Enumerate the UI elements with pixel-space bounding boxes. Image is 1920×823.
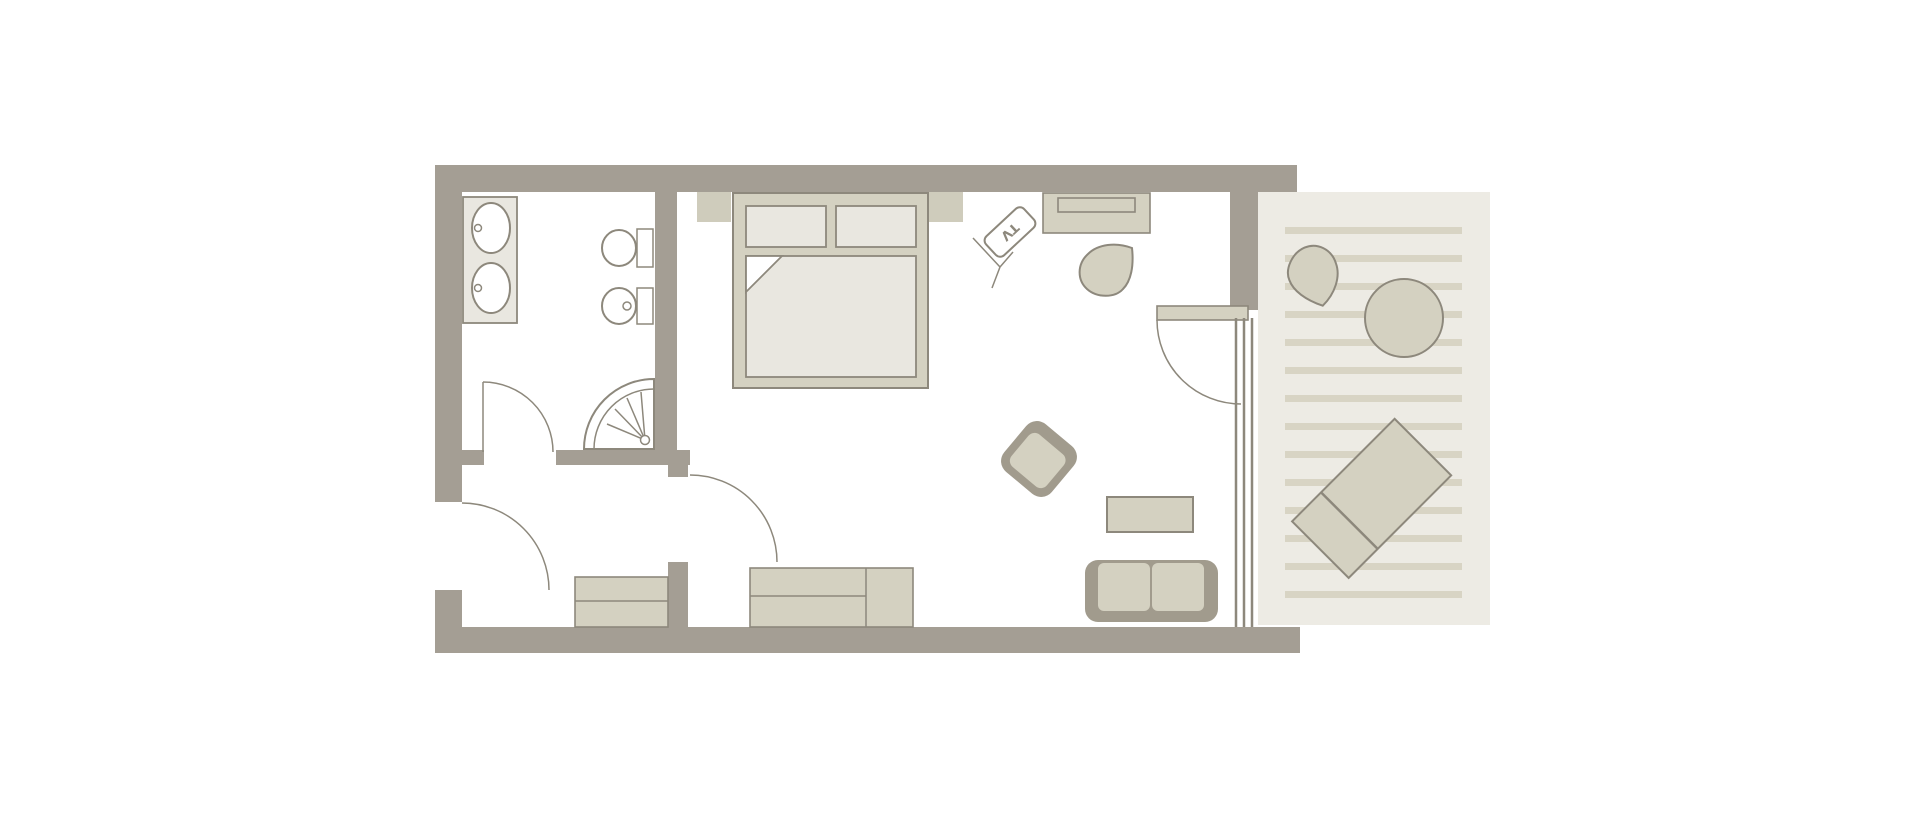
toilet-bowl	[602, 230, 636, 266]
sofa	[1085, 560, 1218, 622]
sink-faucet-icon	[475, 225, 482, 232]
bed-pillow-left	[746, 206, 826, 247]
armchair	[995, 415, 1082, 502]
interior-door-swing	[690, 475, 777, 562]
desk	[1043, 193, 1150, 233]
wall-balcony-stub	[1230, 192, 1258, 310]
balcony-round-table	[1365, 279, 1443, 357]
coffee-table	[1107, 497, 1193, 532]
nightstand-right	[929, 192, 963, 222]
tv-unit: TV	[973, 205, 1038, 288]
shower-drain-icon	[641, 436, 650, 445]
balcony-deck-stripe	[1285, 563, 1462, 570]
balcony-deck-stripe	[1285, 367, 1462, 374]
wall-bathroom-bottom-left	[462, 450, 484, 465]
sideboard	[750, 568, 913, 627]
sink-faucet-icon	[475, 285, 482, 292]
bathroom	[463, 197, 654, 449]
wall-top	[435, 165, 1297, 192]
bed-duvet	[746, 256, 916, 377]
bathroom-door-swing	[483, 382, 553, 452]
sideboard-body	[750, 568, 913, 627]
bed-pillow-right	[836, 206, 916, 247]
sofa-cushion-right	[1152, 563, 1204, 611]
corner-shower	[584, 379, 654, 449]
balcony-deck-stripe	[1285, 423, 1462, 430]
floor-plan: TV	[0, 0, 1920, 823]
balcony-door-leaf	[1157, 306, 1248, 320]
wall-left-upper	[435, 165, 462, 502]
wall-stub-upper	[668, 450, 688, 477]
balcony-deck-stripe	[1285, 395, 1462, 402]
bidet-drain-icon	[623, 302, 631, 310]
entrance-door-swing	[462, 503, 549, 590]
wall-bathroom-right	[655, 192, 677, 465]
wall-stub-lower	[668, 562, 688, 627]
wall-bottom	[435, 627, 1300, 653]
balcony-deck-stripe	[1285, 591, 1462, 598]
bidet-tank	[637, 288, 653, 324]
desk-drawer	[1058, 198, 1135, 212]
luggage-bench-body	[575, 577, 668, 627]
desk-fan-chair	[1080, 245, 1133, 296]
balcony-door-swing	[1157, 320, 1241, 404]
balcony	[1258, 192, 1490, 625]
floor-plan-canvas: TV	[0, 0, 1920, 823]
sliding-glass-door	[1236, 318, 1252, 627]
tv-screen: TV	[982, 205, 1038, 259]
luggage-bench	[575, 577, 668, 627]
nightstand-left	[697, 192, 731, 222]
toilet-tank	[637, 229, 653, 267]
balcony-deck-stripe	[1285, 227, 1462, 234]
double-bed	[733, 193, 928, 388]
sofa-cushion-left	[1098, 563, 1150, 611]
